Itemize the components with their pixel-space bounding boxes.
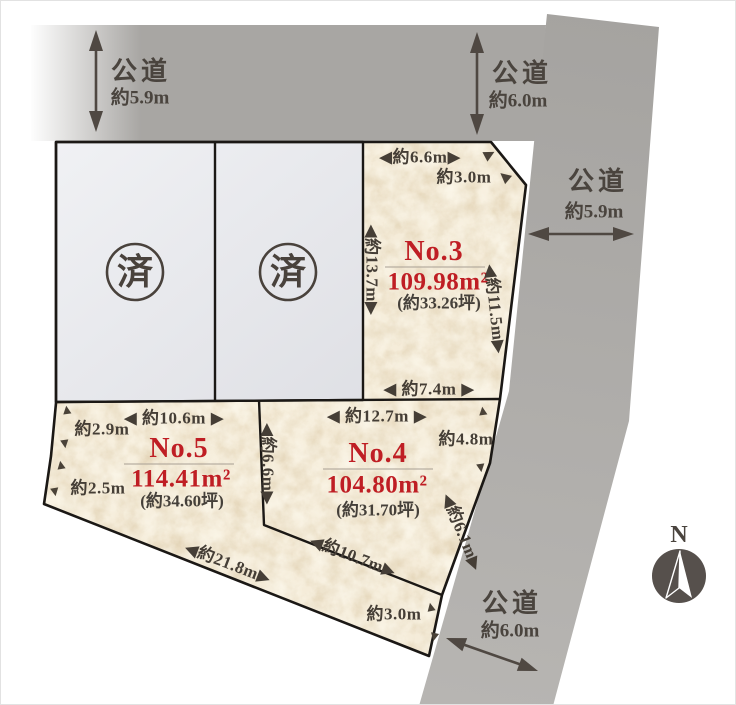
dim-no3-bottom: ◀ 約7.4m ▶ [383,381,475,398]
plot-no4-tsubo: (約31.70坪) [336,502,420,519]
road-width-top-left: 約5.9m [111,89,170,108]
dim-arrow-29-up: ▲ [59,403,75,419]
road-label-top-left: 公道 [111,59,171,85]
plot-no3-number: No.3 [404,238,463,266]
dim-no5-top: ◀ 約10.6m ▶ [124,410,225,427]
dim-arrow-25-up: ▲ [53,458,69,474]
dim-frontage-south: 約3.0m [367,606,422,623]
dim-arrow-29-down: ▼ [57,437,73,453]
sold-badge-left-text: 済 [117,252,153,292]
road-width-right: 約5.9m [565,203,624,222]
north-compass: N [652,522,706,603]
dim-no4-top: ◀ 約12.7m ▶ [327,408,428,425]
dim-no4-right-upper: 約4.8m [439,431,494,448]
dim-arrow-30s-up: ▲ [423,600,439,617]
road-label-bottom: 公道 [482,591,542,617]
plot-no4-rule [323,469,433,470]
dim-arrow-25-down: ▼ [47,485,63,501]
plot-no3-tsubo: (約33.26坪) [397,295,481,312]
dim-no3-left: ◀約13.7m▶ [364,224,381,315]
site-plan-diagram: 済 済 N 公道 約5.9m 公道 約6.0m 公道 約5.9m 公道 約6.0… [0,0,736,705]
dim-arrow-48-down: ▼ [473,461,489,477]
plot-no3-rule [385,267,485,268]
plot-no3-area: 109.98m² [387,270,488,295]
road-width-top-center: 約6.0m [489,92,548,111]
plot-no5-number: No.5 [149,435,208,463]
road-width-bottom: 約6.0m [481,622,540,641]
road-top [31,25,546,141]
plot-no4-area: 104.80m² [326,473,427,498]
dim-arrow-30s-down: ▼ [426,630,442,647]
dim-no5-left-upper: 約2.9m [75,421,130,438]
road-label-top-center: 公道 [492,61,552,87]
road-label-right: 公道 [568,169,628,195]
plot-no5-rule [124,464,234,465]
compass-north-label: N [670,522,688,548]
plot-no5-area: 114.41m² [131,467,231,492]
dim-no3-corner-cut: 約3.0m [437,169,492,186]
sold-badge-right-text: 済 [270,252,306,292]
dim-no3-top: ◀約6.6m▶ [379,149,461,166]
dim-no5-left-lower: 約2.5m [71,480,126,497]
plot-no4-number: No.4 [348,440,407,468]
plot-no5-tsubo: (約34.60坪) [140,493,224,510]
dim-arrow-48-up: ▲ [475,404,491,420]
dim-no4-no5-boundary: ◀約6.6m▶ [260,423,277,505]
